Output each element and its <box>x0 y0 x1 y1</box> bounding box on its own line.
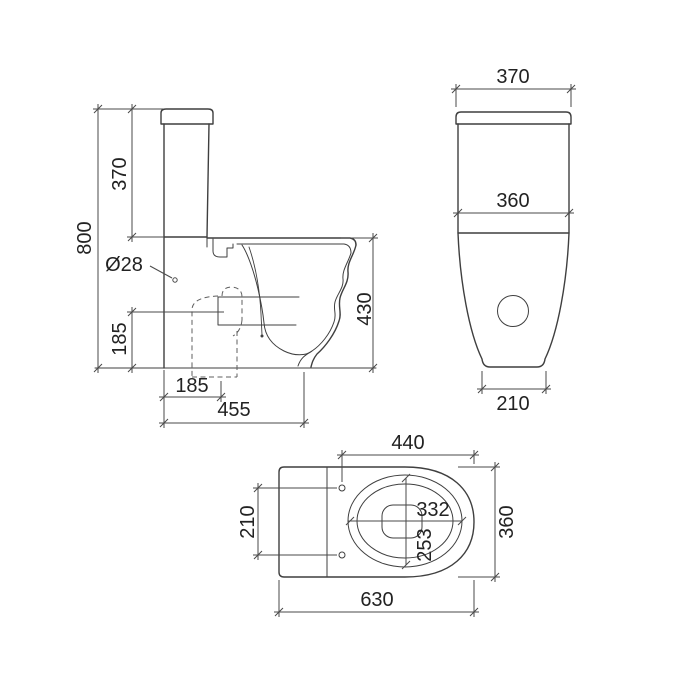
dim-inlet-hole-diameter: Ø28 <box>105 254 143 276</box>
dim-base-width: 210 <box>496 393 529 415</box>
front-view <box>456 112 571 367</box>
dim-rim-length: 440 <box>391 432 424 454</box>
side-flush-line-tip <box>261 335 264 338</box>
dim-tank-width: 360 <box>496 190 529 212</box>
front-view-dimensions: 370 360 210 <box>451 66 576 415</box>
technical-drawing: 800 370 Ø28 185 185 455 430 370 360 210 <box>0 0 700 700</box>
side-inlet-valve-seat <box>207 238 233 257</box>
inlet-hole-marker <box>173 278 177 282</box>
top-view <box>279 467 474 577</box>
dim-lid-width: 370 <box>496 66 529 88</box>
side-flush-water-line <box>249 247 262 335</box>
dim-fixing-hole-centres: 210 <box>237 505 259 538</box>
dim-overall-width: 360 <box>496 505 518 538</box>
hidden-trap-bend <box>222 287 242 320</box>
side-cistern-tank <box>164 124 209 368</box>
dim-outlet-centre-setout: 185 <box>175 375 208 397</box>
top-centerlines <box>348 478 462 565</box>
side-rim-inner-line <box>237 244 351 253</box>
dim-outlet-centre-height: 185 <box>109 322 131 355</box>
side-view-dimensions: 800 370 Ø28 185 185 455 430 <box>74 104 378 428</box>
front-cistern-tank <box>458 124 569 233</box>
side-bowl-interior <box>242 245 312 355</box>
inlet-hole-leader-line <box>150 266 172 278</box>
side-view-hidden-trapway <box>192 287 242 377</box>
front-dim-ticks <box>452 85 575 393</box>
dim-base-depth: 455 <box>217 399 250 421</box>
front-outlet-circle <box>498 296 529 327</box>
side-cistern-lid <box>161 109 213 124</box>
dim-overall-length: 630 <box>360 589 393 611</box>
dim-pan-height: 430 <box>354 292 376 325</box>
front-dim-lines <box>451 89 576 389</box>
hidden-trap-left <box>192 296 218 377</box>
front-pan-body <box>458 233 569 367</box>
top-fixing-hole-upper <box>339 485 345 491</box>
side-view <box>95 109 376 368</box>
dim-inner-bowl-length: 332 <box>416 499 449 521</box>
side-outlet-pipe <box>218 297 299 325</box>
front-extension-lines <box>456 84 571 394</box>
dim-cistern-height: 370 <box>109 157 131 190</box>
dim-total-height: 800 <box>74 221 96 254</box>
front-cistern-lid <box>456 112 571 124</box>
dim-inner-bowl-width: 253 <box>414 528 436 561</box>
side-bowl-outer-back <box>311 245 356 367</box>
side-bowl-inner-wall <box>298 253 351 366</box>
top-fixing-hole-lower <box>339 552 345 558</box>
